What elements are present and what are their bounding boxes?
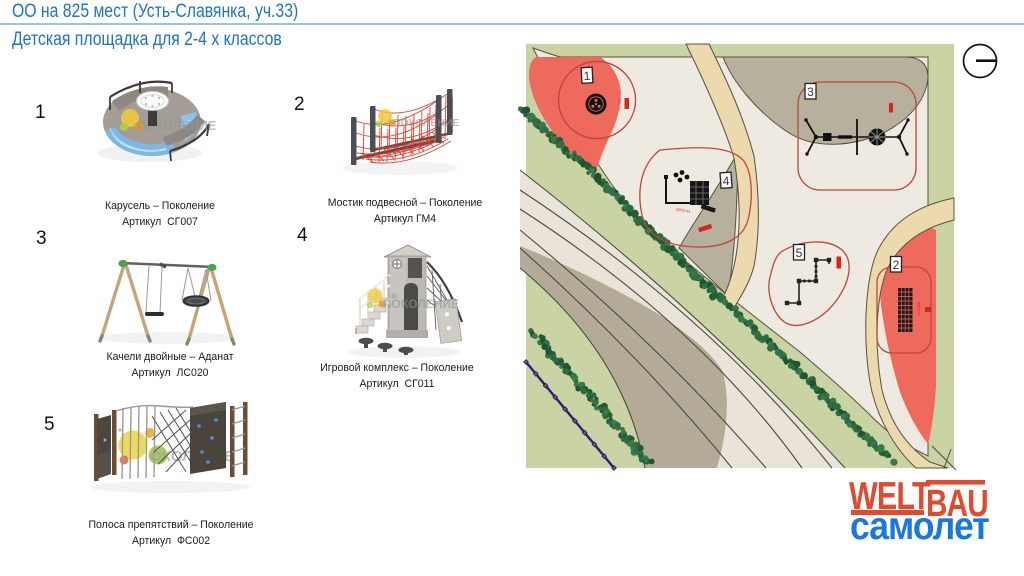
svg-text:ПОКОЛЕНИЕ: ПОКОЛЕНИЕ — [393, 117, 460, 129]
svg-text:5: 5 — [796, 246, 803, 260]
svg-text:1: 1 — [583, 69, 591, 83]
svg-text:ПОКОЛЕНИЕ: ПОКОЛЕНИЕ — [383, 297, 459, 311]
svg-text:H=1500: H=1500 — [916, 301, 921, 316]
svg-text:H=750: H=750 — [617, 97, 622, 110]
svg-text:3: 3 — [807, 85, 814, 99]
svg-text:самолет: самолет — [850, 503, 989, 547]
svg-text:2: 2 — [893, 258, 900, 272]
svg-text:4: 4 — [722, 174, 730, 188]
